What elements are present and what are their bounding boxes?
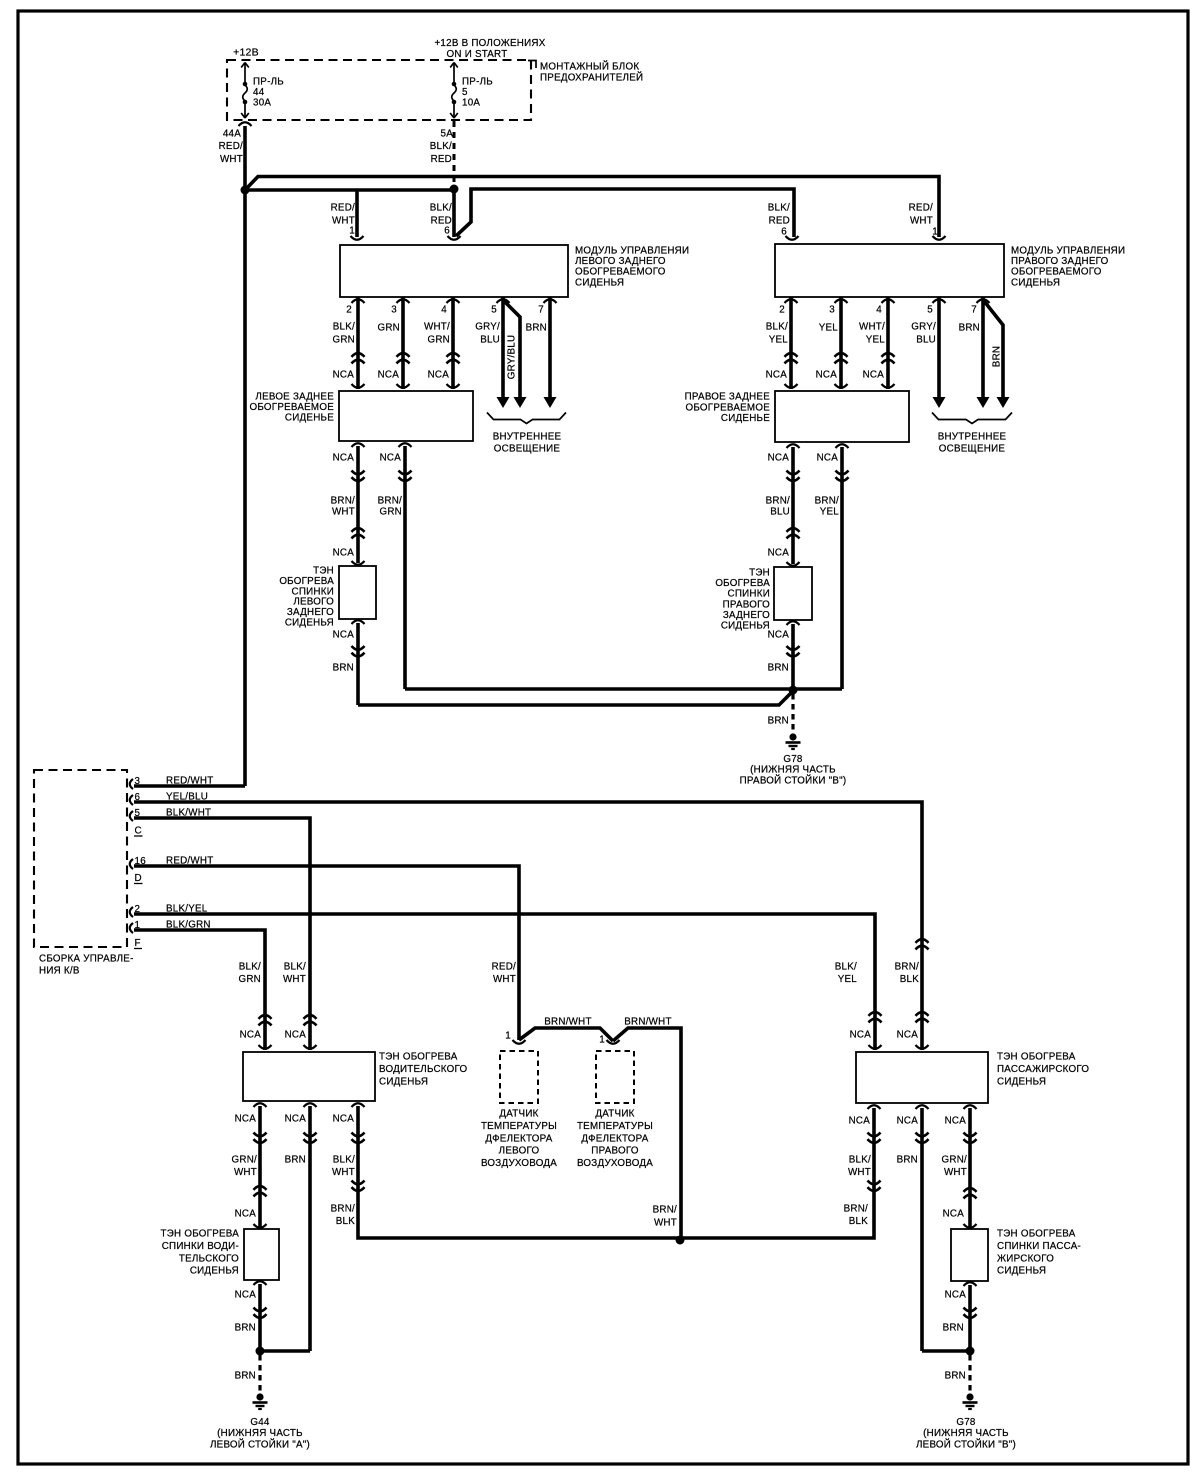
svg-text:BRN: BRN	[768, 663, 789, 674]
svg-text:ВОЗДУХОВОДА: ВОЗДУХОВОДА	[481, 1158, 557, 1169]
svg-text:NCA: NCA	[333, 630, 355, 641]
svg-text:МОДУЛЬ УПРАВЛЕНЯИ: МОДУЛЬ УПРАВЛЕНЯИ	[575, 246, 689, 257]
svg-text:ВОДИТЕЛЬСКОГО: ВОДИТЕЛЬСКОГО	[379, 1064, 467, 1075]
svg-text:СБОРКА УПРАВЛЕ-: СБОРКА УПРАВЛЕ-	[39, 954, 134, 965]
svg-text:NCA: NCA	[333, 370, 355, 381]
svg-text:СИДЕНЬЯ: СИДЕНЬЯ	[721, 621, 770, 632]
svg-text:ОСВЕЩЕНИЕ: ОСВЕЩЕНИЕ	[494, 444, 561, 455]
svg-text:NCA: NCA	[235, 1290, 257, 1301]
svg-text:ОБОГРЕВАЕМОЕ: ОБОГРЕВАЕМОЕ	[685, 402, 770, 413]
svg-text:ЛЕВОГО: ЛЕВОГО	[499, 1146, 540, 1157]
svg-text:ТЭН ОБОГРЕВА: ТЭН ОБОГРЕВА	[379, 1052, 458, 1063]
svg-text:NCA: NCA	[945, 1290, 967, 1301]
svg-text:7: 7	[538, 305, 544, 316]
svg-text:ЛЕВОЙ СТОЙКИ "А"): ЛЕВОЙ СТОЙКИ "А")	[210, 1438, 310, 1450]
svg-text:WHT: WHT	[944, 1167, 967, 1178]
svg-text:ОСВЕЩЕНИЕ: ОСВЕЩЕНИЕ	[939, 444, 1006, 455]
svg-text:СИДЕНЬЯ: СИДЕНЬЯ	[190, 1266, 239, 1277]
svg-text:30А: 30А	[253, 98, 271, 109]
svg-text:WHT: WHT	[654, 1218, 677, 1229]
svg-text:ТЕМПЕРАТУРЫ: ТЕМПЕРАТУРЫ	[481, 1121, 557, 1132]
svg-text:YEL: YEL	[819, 323, 839, 334]
svg-text:BRN/: BRN/	[653, 1205, 677, 1216]
svg-text:GRN/: GRN/	[232, 1155, 258, 1166]
svg-text:ТЭН: ТЭН	[313, 566, 334, 577]
svg-text:5А: 5А	[441, 129, 454, 140]
svg-text:RED: RED	[431, 154, 452, 165]
svg-text:44: 44	[253, 87, 265, 98]
svg-text:BRN/: BRN/	[895, 962, 919, 973]
svg-text:BRN: BRN	[992, 346, 1003, 367]
svg-text:ОБОГРЕВАЕМОЕ: ОБОГРЕВАЕМОЕ	[249, 402, 334, 413]
svg-text:YEL: YEL	[838, 974, 858, 985]
svg-text:ОБОГРЕВА: ОБОГРЕВА	[715, 578, 770, 589]
svg-text:NCA: NCA	[333, 453, 355, 464]
svg-text:СИДЕНЬЯ: СИДЕНЬЯ	[1011, 277, 1060, 288]
svg-text:BRN: BRN	[235, 1323, 256, 1334]
svg-text:BRN/: BRN/	[331, 496, 355, 507]
svg-text:NCA: NCA	[897, 1116, 919, 1127]
svg-text:BRN: BRN	[897, 1155, 918, 1166]
svg-text:ЛЕВОГО: ЛЕВОГО	[293, 597, 334, 608]
svg-text:BLK/: BLK/	[835, 962, 857, 973]
svg-text:GRN: GRN	[238, 974, 261, 985]
svg-text:BLK/: BLK/	[430, 203, 452, 214]
svg-text:RED/: RED/	[492, 962, 516, 973]
svg-text:WHT: WHT	[283, 974, 306, 985]
svg-text:NCA: NCA	[240, 1030, 262, 1041]
svg-text:СИДЕНЬЯ: СИДЕНЬЯ	[997, 1266, 1046, 1277]
svg-text:WHT: WHT	[234, 1167, 257, 1178]
svg-text:СИДЕНЬЕ: СИДЕНЬЕ	[721, 413, 770, 424]
svg-text:BLK/: BLK/	[768, 203, 790, 214]
svg-text:ЛЕВОЙ СТОЙКИ "В"): ЛЕВОЙ СТОЙКИ "В")	[916, 1438, 1016, 1450]
svg-text:NCA: NCA	[428, 370, 450, 381]
svg-text:WHT: WHT	[332, 507, 355, 518]
svg-text:YEL: YEL	[866, 335, 886, 346]
svg-text:BLU: BLU	[916, 335, 936, 346]
svg-text:NCA: NCA	[766, 370, 788, 381]
svg-text:ОБОГРЕВА: ОБОГРЕВА	[279, 576, 334, 587]
svg-text:BLK/: BLK/	[333, 322, 355, 333]
svg-text:BRN: BRN	[285, 1155, 306, 1166]
svg-text:NCA: NCA	[333, 1114, 355, 1125]
svg-text:1: 1	[349, 226, 355, 237]
svg-text:(НИЖНЯЯ ЧАСТЬ: (НИЖНЯЯ ЧАСТЬ	[923, 1428, 1009, 1439]
svg-text:ЗАДНЕГО: ЗАДНЕГО	[723, 610, 770, 621]
svg-text:СПИНКИ: СПИНКИ	[292, 586, 334, 597]
svg-text:СИДЕНЬЯ: СИДЕНЬЯ	[285, 618, 334, 629]
svg-text:ВНУТРЕННЕЕ: ВНУТРЕННЕЕ	[938, 432, 1007, 443]
svg-text:1: 1	[505, 1031, 511, 1042]
svg-text:NCA: NCA	[816, 370, 838, 381]
svg-text:NCA: NCA	[285, 1114, 307, 1125]
svg-text:СИДЕНЬЯ: СИДЕНЬЯ	[575, 277, 624, 288]
svg-text:BLK: BLK	[849, 1216, 868, 1227]
svg-text:G44: G44	[250, 1417, 270, 1428]
svg-text:GRY/: GRY/	[475, 322, 500, 333]
svg-text:NCA: NCA	[849, 1116, 871, 1127]
svg-text:ОБОГРЕВАЕМОГО: ОБОГРЕВАЕМОГО	[575, 267, 666, 278]
svg-text:BRN: BRN	[235, 1371, 256, 1382]
svg-text:BRN/: BRN/	[331, 1204, 355, 1215]
svg-text:YEL: YEL	[769, 335, 789, 346]
svg-text:СИДЕНЬЯ: СИДЕНЬЯ	[379, 1076, 428, 1087]
svg-text:ПР-ЛЬ: ПР-ЛЬ	[253, 77, 284, 88]
svg-text:RED/: RED/	[331, 203, 355, 214]
svg-text:BRN/: BRN/	[815, 496, 839, 507]
svg-text:BLK/: BLK/	[284, 962, 306, 973]
svg-text:BLK/: BLK/	[766, 322, 788, 333]
svg-text:NCA: NCA	[850, 1030, 872, 1041]
svg-text:6: 6	[444, 226, 450, 237]
svg-text:ON И START: ON И START	[447, 49, 508, 60]
svg-text:GRN: GRN	[332, 335, 355, 346]
svg-text:1: 1	[599, 1035, 605, 1046]
svg-text:NCA: NCA	[943, 1209, 965, 1220]
svg-text:ПРАВОГО: ПРАВОГО	[723, 599, 771, 610]
svg-text:СИДЕНЬЕ: СИДЕНЬЕ	[285, 413, 334, 424]
svg-text:NCA: NCA	[235, 1209, 257, 1220]
svg-text:WHT: WHT	[493, 974, 516, 985]
svg-text:BRN: BRN	[768, 716, 789, 727]
svg-text:ДФЕЛЕКТОРА: ДФЕЛЕКТОРА	[581, 1133, 648, 1144]
svg-text:ТЭН ОБОГРЕВА: ТЭН ОБОГРЕВА	[997, 1229, 1076, 1240]
svg-text:3: 3	[829, 305, 835, 316]
svg-text:WHT: WHT	[220, 154, 243, 165]
svg-text:ТЕМПЕРАТУРЫ: ТЕМПЕРАТУРЫ	[577, 1121, 653, 1132]
svg-text:BLU: BLU	[770, 507, 790, 518]
svg-text:СПИНКИ: СПИНКИ	[728, 589, 770, 600]
svg-text:НИЯ К/В: НИЯ К/В	[39, 966, 80, 977]
svg-text:3: 3	[391, 305, 397, 316]
svg-text:NCA: NCA	[378, 370, 400, 381]
svg-text:NCA: NCA	[285, 1030, 307, 1041]
svg-text:ДАТЧИК: ДАТЧИК	[499, 1109, 538, 1120]
svg-text:4: 4	[441, 305, 447, 316]
svg-text:ВОЗДУХОВОДА: ВОЗДУХОВОДА	[577, 1158, 653, 1169]
svg-text:5: 5	[462, 87, 468, 98]
svg-text:7: 7	[971, 305, 977, 316]
svg-text:ВНУТРЕННЕЕ: ВНУТРЕННЕЕ	[493, 432, 562, 443]
svg-text:+12В: +12В	[233, 47, 259, 59]
svg-text:ДАТЧИК: ДАТЧИК	[595, 1109, 634, 1120]
svg-text:F: F	[135, 938, 141, 949]
svg-text:(НИЖНЯЯ ЧАСТЬ: (НИЖНЯЯ ЧАСТЬ	[750, 765, 836, 776]
svg-text:ТЭН: ТЭН	[749, 568, 770, 579]
svg-text:ПРАВОГО ЗАДНЕГО: ПРАВОГО ЗАДНЕГО	[1011, 256, 1109, 267]
svg-text:BRN/WHT: BRN/WHT	[544, 1017, 591, 1028]
svg-text:BRN: BRN	[945, 1371, 966, 1382]
svg-text:YEL: YEL	[820, 507, 840, 518]
svg-text:BRN: BRN	[526, 323, 547, 334]
svg-text:RED: RED	[769, 216, 790, 227]
svg-text:WHT: WHT	[910, 216, 933, 227]
svg-text:(НИЖНЯЯ ЧАСТЬ: (НИЖНЯЯ ЧАСТЬ	[217, 1428, 303, 1439]
svg-text:BRN/: BRN/	[844, 1204, 868, 1215]
svg-text:WHT: WHT	[332, 1167, 355, 1178]
svg-text:МОДУЛЬ УПРАВЛЕНЯИ: МОДУЛЬ УПРАВЛЕНЯИ	[1011, 246, 1125, 257]
svg-text:BRN/: BRN/	[766, 496, 790, 507]
svg-text:NCA: NCA	[897, 1030, 919, 1041]
svg-text:GRN/: GRN/	[942, 1155, 968, 1166]
svg-text:5: 5	[491, 305, 497, 316]
svg-text:4: 4	[876, 305, 882, 316]
svg-text:NCA: NCA	[768, 453, 790, 464]
svg-text:NCA: NCA	[768, 548, 790, 559]
svg-text:ТЕЛЬСКОГО: ТЕЛЬСКОГО	[179, 1253, 239, 1264]
svg-text:ТЭН ОБОГРЕВА: ТЭН ОБОГРЕВА	[997, 1052, 1076, 1063]
svg-text:МОНТАЖНЫЙ БЛОК: МОНТАЖНЫЙ БЛОК	[540, 61, 639, 73]
svg-text:WHT: WHT	[848, 1167, 871, 1178]
svg-text:RED/: RED/	[219, 141, 243, 152]
svg-text:ЖИРСКОГО: ЖИРСКОГО	[997, 1253, 1054, 1264]
svg-text:C: C	[135, 826, 142, 837]
svg-text:ПАССАЖИРСКОГО: ПАССАЖИРСКОГО	[997, 1064, 1089, 1075]
svg-text:BLK: BLK	[336, 1216, 355, 1227]
svg-text:2: 2	[779, 305, 785, 316]
svg-text:NCA: NCA	[380, 453, 402, 464]
svg-text:D: D	[135, 873, 142, 884]
svg-text:+12В В ПОЛОЖЕНИЯХ: +12В В ПОЛОЖЕНИЯХ	[434, 38, 545, 49]
svg-text:BLK: BLK	[900, 974, 919, 985]
svg-text:BLK/: BLK/	[849, 1155, 871, 1166]
svg-text:ЛЕВОГО ЗАДНЕГО: ЛЕВОГО ЗАДНЕГО	[575, 256, 666, 267]
svg-text:NCA: NCA	[768, 630, 790, 641]
svg-text:BRN: BRN	[959, 323, 980, 334]
svg-text:ПРАВОЙ СТОЙКИ "В"): ПРАВОЙ СТОЙКИ "В")	[740, 774, 847, 786]
svg-text:NCA: NCA	[863, 370, 885, 381]
svg-text:СПИНКИ ВОДИ-: СПИНКИ ВОДИ-	[162, 1241, 239, 1252]
svg-text:ОБОГРЕВАЕМОГО: ОБОГРЕВАЕМОГО	[1011, 267, 1102, 278]
svg-text:ПР-ЛЬ: ПР-ЛЬ	[462, 77, 493, 88]
svg-text:NCA: NCA	[945, 1116, 967, 1127]
svg-text:ЗАДНЕГО: ЗАДНЕГО	[287, 607, 334, 618]
svg-text:BLK/: BLK/	[430, 141, 452, 152]
svg-text:RED/: RED/	[909, 203, 933, 214]
svg-text:NCA: NCA	[817, 453, 839, 464]
svg-text:NCA: NCA	[235, 1114, 257, 1125]
svg-text:BRN/: BRN/	[378, 496, 402, 507]
svg-text:ПРЕДОХРАНИТЕЛЕЙ: ПРЕДОХРАНИТЕЛЕЙ	[540, 72, 643, 84]
svg-text:G78: G78	[956, 1417, 976, 1428]
svg-text:NCA: NCA	[333, 548, 355, 559]
svg-text:ПРАВОГО: ПРАВОГО	[591, 1146, 639, 1157]
svg-text:СИДЕНЬЯ: СИДЕНЬЯ	[997, 1076, 1046, 1087]
svg-text:BLU: BLU	[480, 335, 500, 346]
svg-text:2: 2	[346, 305, 352, 316]
svg-text:WHT/: WHT/	[859, 322, 885, 333]
svg-text:5: 5	[927, 305, 933, 316]
svg-text:СПИНКИ ПАССА-: СПИНКИ ПАССА-	[997, 1241, 1081, 1252]
svg-text:GRN: GRN	[379, 507, 402, 518]
svg-text:ТЭН ОБОГРЕВА: ТЭН ОБОГРЕВА	[161, 1229, 240, 1240]
svg-text:G78: G78	[783, 754, 803, 765]
svg-text:BLK/: BLK/	[239, 962, 261, 973]
svg-text:ПРАВОЕ ЗАДНЕЕ: ПРАВОЕ ЗАДНЕЕ	[685, 392, 771, 403]
svg-text:44А: 44А	[223, 129, 241, 140]
svg-text:BRN: BRN	[943, 1323, 964, 1334]
svg-text:GRY/BLU: GRY/BLU	[507, 335, 518, 380]
svg-text:GRN: GRN	[427, 335, 450, 346]
svg-text:ЛЕВОЕ ЗАДНЕЕ: ЛЕВОЕ ЗАДНЕЕ	[255, 392, 334, 403]
svg-text:BRN/WHT: BRN/WHT	[624, 1017, 671, 1028]
svg-text:BLK/: BLK/	[333, 1155, 355, 1166]
svg-text:GRY/: GRY/	[911, 322, 936, 333]
svg-text:ДФЕЛЕКТОРА: ДФЕЛЕКТОРА	[485, 1133, 552, 1144]
svg-text:WHT/: WHT/	[424, 322, 450, 333]
svg-text:10А: 10А	[462, 98, 480, 109]
svg-text:BRN: BRN	[333, 663, 354, 674]
svg-text:GRN: GRN	[377, 323, 400, 334]
